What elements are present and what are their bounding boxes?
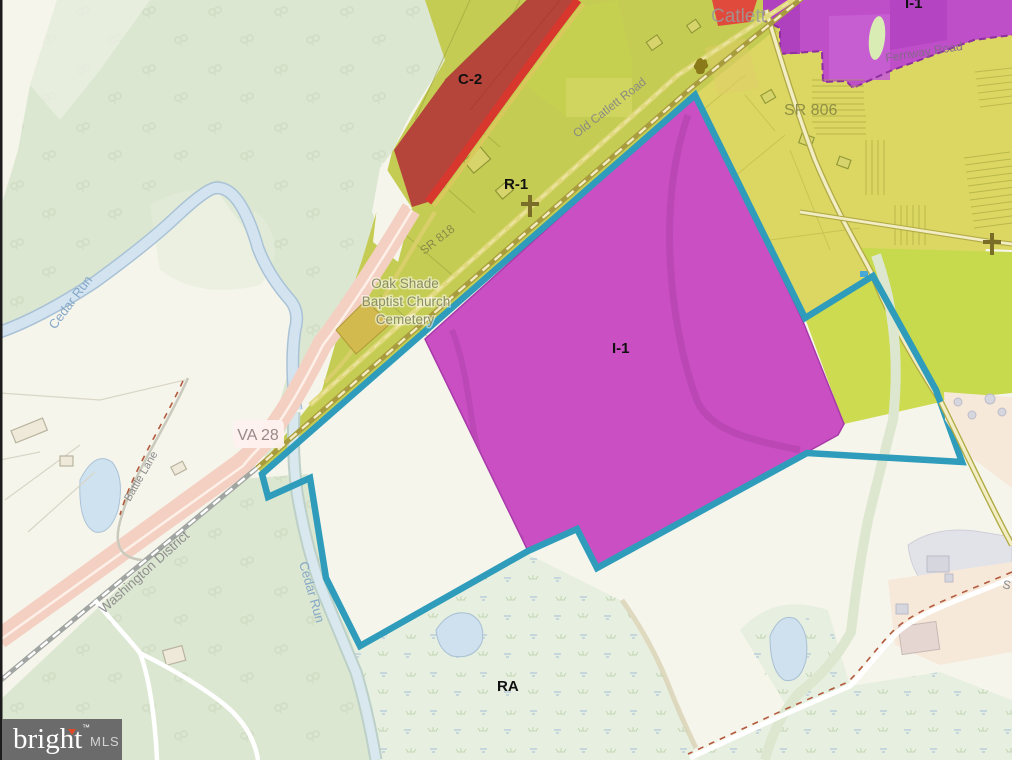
- svg-text:bright: bright: [13, 723, 82, 755]
- svg-text:RA: RA: [497, 678, 519, 695]
- svg-text:Oak Shade: Oak Shade: [371, 276, 439, 291]
- svg-text:™: ™: [82, 723, 90, 732]
- svg-text:Cemetery: Cemetery: [376, 312, 435, 327]
- svg-text:VA 28: VA 28: [237, 427, 279, 444]
- svg-text:Catlett: Catlett: [711, 6, 767, 27]
- svg-text:MLS: MLS: [90, 734, 120, 749]
- svg-text:C-2: C-2: [458, 71, 482, 88]
- svg-text:Baptist Church: Baptist Church: [362, 294, 451, 309]
- svg-text:I-1: I-1: [905, 0, 923, 12]
- svg-text:SR 806: SR 806: [784, 102, 837, 119]
- svg-text:I-1: I-1: [612, 340, 630, 357]
- svg-text:R-1: R-1: [504, 176, 528, 193]
